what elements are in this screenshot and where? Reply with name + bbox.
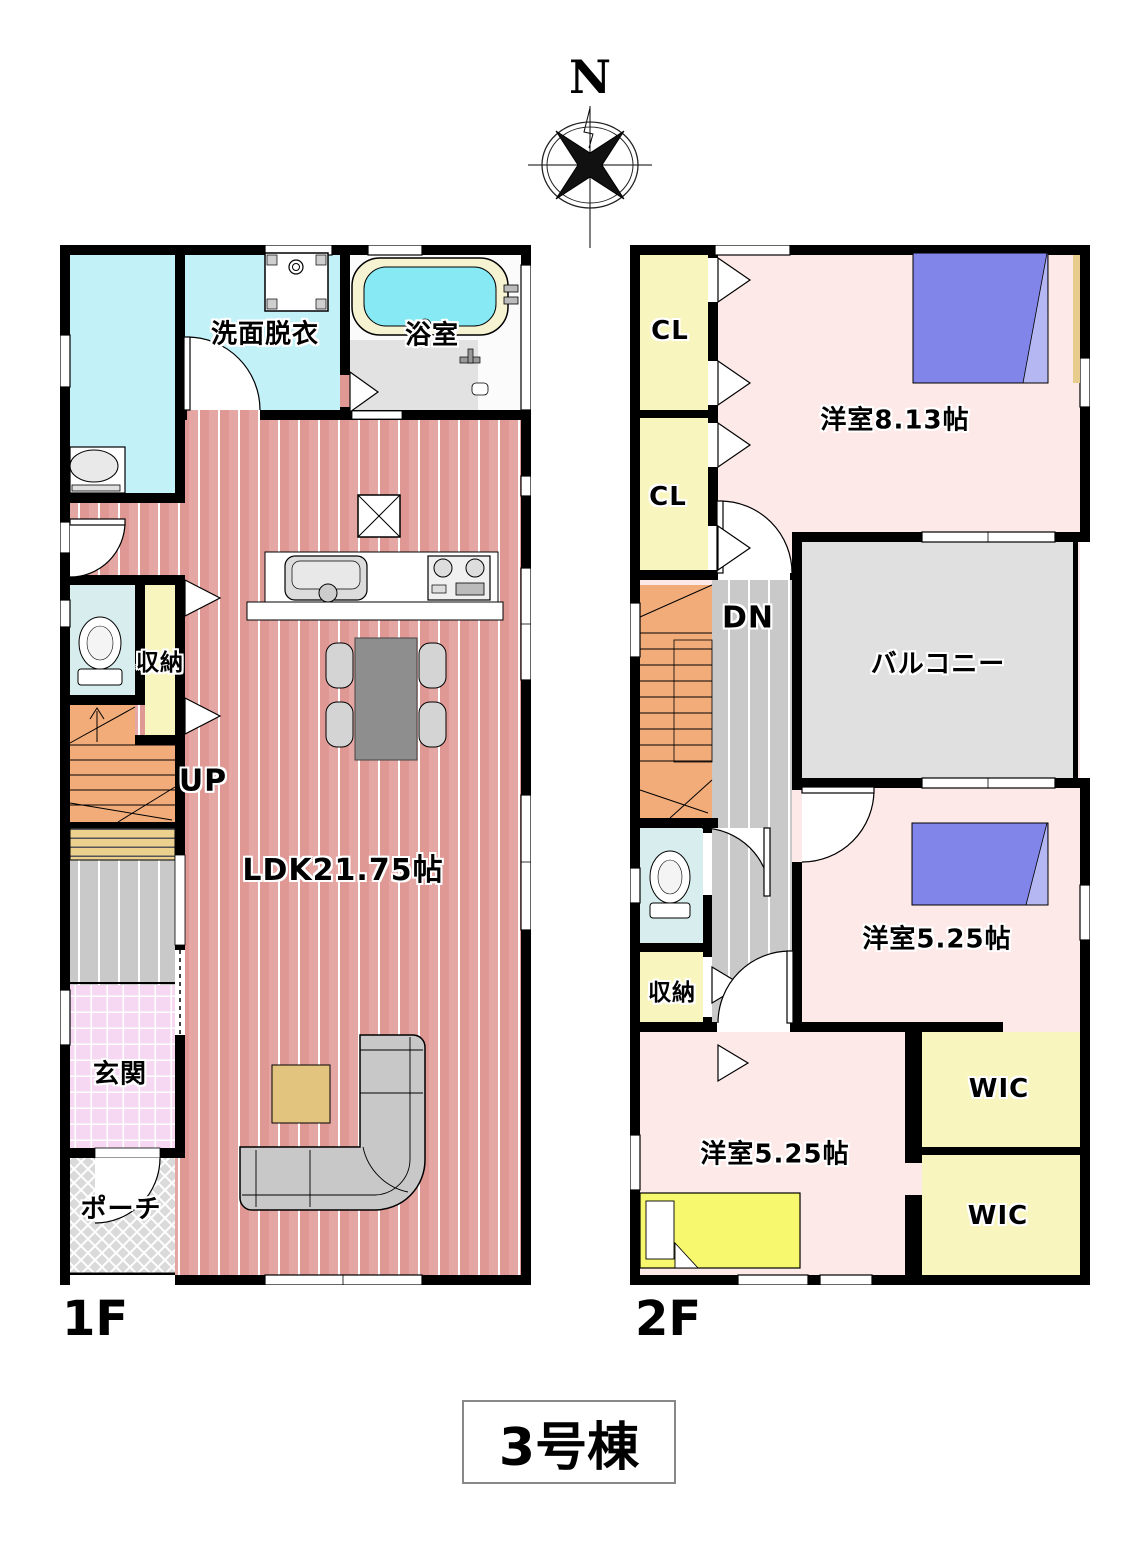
floor-plan-1f-drawing (60, 245, 531, 1285)
room-label-bedroom2: 洋室5.25帖 (862, 919, 1011, 956)
room-label-storage-2f: 収納 (648, 973, 696, 1007)
compass-north-label: N (569, 50, 611, 104)
room-label-closet1: CL (651, 316, 689, 346)
floor-label-2f: 2F (635, 1291, 701, 1347)
room-label-storage-1f: 収納 (136, 643, 184, 677)
shoe-cabinet (70, 828, 175, 860)
stairs-floor-top (70, 705, 135, 750)
bed-icon-bedroom3 (640, 1193, 800, 1268)
room-label-closet2: CL (649, 482, 687, 512)
stairs-floor-2f (640, 585, 712, 818)
refrigerator-space-icon (358, 495, 400, 537)
room-label-washroom: 洗面脱衣 (211, 314, 319, 351)
coffee-table-icon (272, 1065, 330, 1123)
building-title-box: 3号棟 (462, 1400, 676, 1484)
stairs-floor (70, 745, 175, 822)
toilet-icon (78, 617, 122, 685)
room-label-entrance: 玄関 (93, 1054, 147, 1091)
room-label-wic2: WIC (968, 1201, 1028, 1231)
toilet-icon-2f (650, 851, 690, 918)
room-label-bedroom3: 洋室5.25帖 (700, 1134, 849, 1171)
floor-label-1f: 1F (62, 1291, 128, 1347)
stairs-up-label: UP (179, 764, 227, 799)
compass: N (515, 58, 665, 253)
room-label-wic1: WIC (969, 1074, 1029, 1104)
floor-plan-2f: CL CL 洋室8.13帖 DN バルコニー 洋室5.25帖 収納 WIC 洋室… (630, 245, 1090, 1355)
floor-plan-1f: 洗面脱衣 浴室 収納 UP LDK21.75帖 玄関 ポーチ 1F (60, 245, 531, 1355)
washing-machine-icon (265, 253, 328, 311)
building-title: 3号棟 (499, 1405, 639, 1480)
room-label-bedroom1: 洋室8.13帖 (820, 400, 969, 437)
floorplan-page: N (0, 0, 1138, 1542)
room-label-balcony: バルコニー (871, 644, 1005, 681)
room-label-bath: 浴室 (405, 315, 459, 352)
stairs-down-label: DN (722, 601, 774, 636)
room-label-ldk: LDK21.75帖 (242, 845, 443, 889)
kitchen-counter-icon (247, 552, 503, 620)
bed-icon-bedroom2 (912, 823, 1048, 905)
room-label-porch: ポーチ (80, 1189, 161, 1226)
vanity-sink-icon (70, 447, 125, 493)
